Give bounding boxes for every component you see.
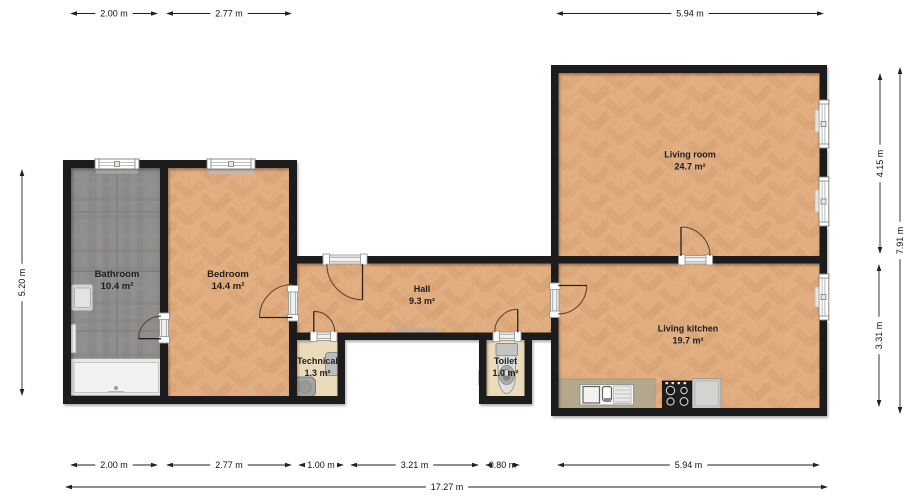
svg-text:3.21 m: 3.21 m (401, 460, 429, 470)
svg-text:5.94 m: 5.94 m (675, 460, 703, 470)
svg-text:0.80 m: 0.80 m (489, 460, 517, 470)
svg-text:5.94 m: 5.94 m (676, 9, 704, 19)
svg-text:3.31 m: 3.31 m (874, 322, 884, 350)
svg-text:2.77 m: 2.77 m (215, 9, 243, 19)
svg-text:1.3 m²: 1.3 m² (304, 368, 330, 378)
svg-text:Living room: Living room (664, 150, 716, 160)
svg-text:Bathroom: Bathroom (95, 269, 140, 280)
svg-text:1.00 m: 1.00 m (307, 460, 335, 470)
svg-text:9.3 m²: 9.3 m² (409, 296, 435, 306)
svg-text:5.20 m: 5.20 m (17, 269, 27, 297)
svg-text:2.77 m: 2.77 m (215, 460, 243, 470)
svg-text:7.91 m: 7.91 m (895, 227, 905, 255)
svg-text:Hall: Hall (414, 284, 431, 294)
svg-text:2.00 m: 2.00 m (100, 9, 128, 19)
svg-text:24.7 m²: 24.7 m² (674, 162, 705, 172)
svg-text:1.0 m²: 1.0 m² (492, 368, 518, 378)
svg-text:Living kitchen: Living kitchen (658, 324, 719, 334)
svg-text:19.7 m²: 19.7 m² (672, 336, 703, 346)
svg-text:Bedroom: Bedroom (207, 269, 249, 280)
svg-text:Technical: Technical (297, 356, 338, 366)
svg-text:14.4 m²: 14.4 m² (212, 281, 245, 292)
svg-text:4.15 m: 4.15 m (875, 150, 885, 178)
svg-text:17.27 m: 17.27 m (431, 482, 464, 492)
svg-text:2.00 m: 2.00 m (100, 460, 128, 470)
svg-text:10.4 m²: 10.4 m² (101, 281, 134, 292)
svg-text:Toilet: Toilet (494, 356, 517, 366)
